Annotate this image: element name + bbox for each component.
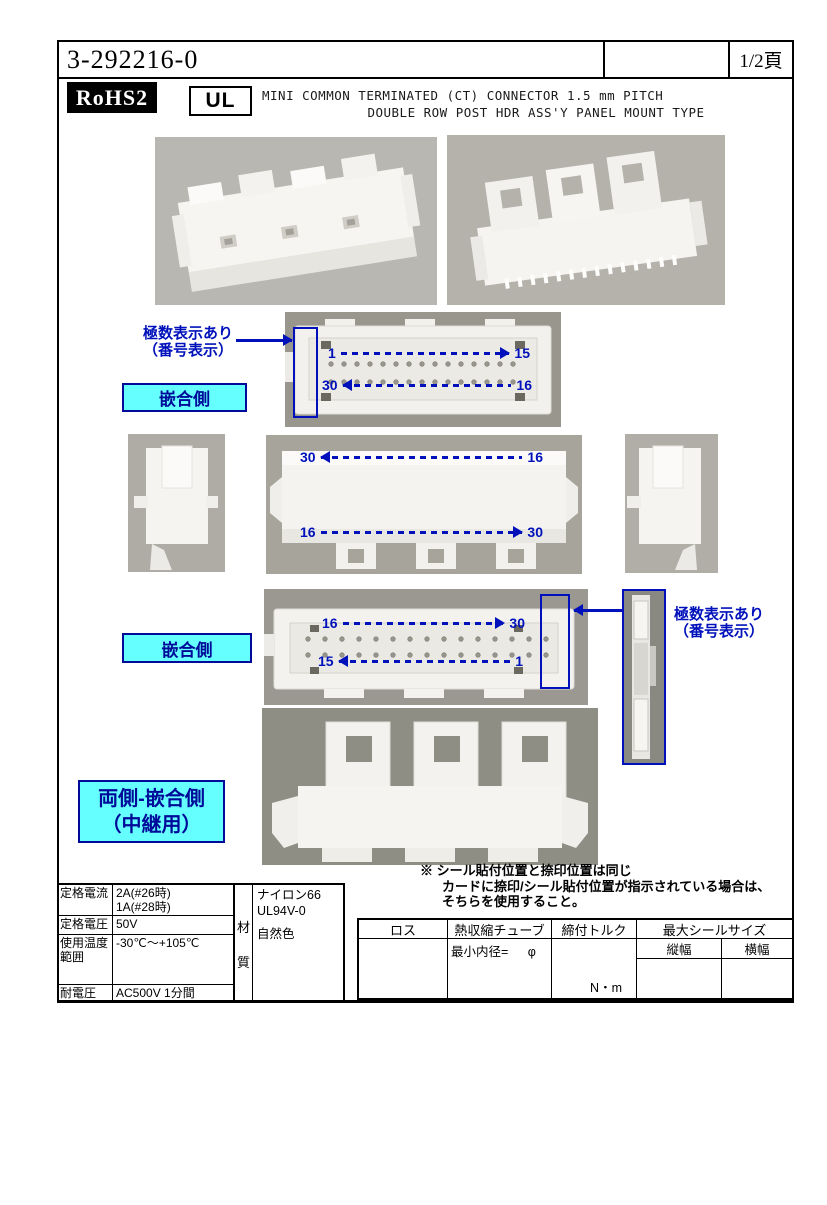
photo-iso-view-left [155,137,437,305]
material-label-char2: 質 [237,952,250,971]
heat-shrink-cell: 最小内径= φ [448,939,552,998]
rohs2-badge: RoHS2 [67,82,157,113]
seal-position-note: ※ シール貼付位置と捺印位置は同じ カードに捺印/シール貼付位置が指示されている… [420,863,805,910]
max-seal-subheader: 縦幅 横幅 [637,939,792,957]
callout-line2: （番号表示） [663,623,775,640]
rated-voltage-value: 50V [113,916,233,935]
pin-number: 16 [516,377,532,393]
col-header-loss: ロス [359,920,448,939]
dashed-arrow-left [321,456,523,459]
spec-table: 定格電流 2A(#26時) 1A(#28時) 定格電圧 50V 使用温度 範囲 … [57,883,235,1003]
connector-illustration [447,135,725,305]
pin-number: 16 [527,449,543,465]
col-header-max-seal: 最大シールサイズ [637,920,792,939]
connector-end-illustration [128,434,225,572]
photo-relay-type [262,708,598,865]
pin-number: 1 [328,345,336,361]
temp-range-label2: 範囲 [60,950,109,964]
title-block-header: 3-292216-0 1/2頁 [57,40,794,79]
rated-current-value: 2A(#26時) 1A(#28時) [113,885,233,916]
temp-range-label: 使用温度 範囲 [57,935,113,985]
connector-face-illustration [285,312,561,427]
pin-number: 30 [509,615,525,631]
material-box: 材 質 ナイロン66 UL94V-0 自然色 [235,883,345,1003]
pin-number: 30 [527,524,543,540]
callout-line1: 極数表示あり [133,325,243,342]
photo-end-view-right [625,434,718,573]
pin-number: 16 [322,615,338,631]
callout-arrow-right [574,609,622,612]
material-value3: 自然色 [257,926,339,942]
dashed-arrow-right [343,622,505,625]
callout-arrow-top [236,339,292,342]
connector-end-illustration [625,434,718,573]
both-sides-line2: （中継用） [102,812,202,838]
both-sides-line1: 両側-嵌合側 [98,786,205,812]
max-seal-body [637,957,792,998]
photo-marking-closeup [622,589,666,765]
phi-symbol: φ [528,945,536,959]
photo-end-view-left [128,434,225,572]
temp-range-value: -30℃〜+105℃ [113,935,233,985]
pin-number: 15 [514,345,530,361]
seal-horizontal-header: 横幅 [722,939,792,959]
datasheet-page: 3-292216-0 1/2頁 RoHS2 UL MINI COMMON TER… [0,0,827,1205]
ul-badge: UL [189,86,252,116]
col-header-heat-shrink: 熱収縮チューブ [448,920,552,939]
pole-marking-highlight-left [293,327,318,418]
pole-marking-callout-right: 極数表示あり （番号表示） [663,606,775,640]
pin-number: 15 [318,653,334,669]
pole-marking-highlight-right [540,594,570,689]
photo-iso-view-right [447,135,725,305]
marking-strip-illustration [624,591,664,763]
pole-marking-callout-top: 極数表示あり （番号表示） [133,325,243,359]
col-header-torque: 締付トルク [552,920,637,939]
product-title-line2: DOUBLE ROW POST HDR ASS'Y PANEL MOUNT TY… [262,104,810,121]
material-value2: UL94V-0 [257,903,339,919]
dashed-arrow-right [341,352,510,355]
pin-row-face2-bottom: 15 1 [318,653,523,669]
pin-number: 16 [300,524,316,540]
min-inner-dia-label: 最小内径= [451,945,508,959]
dashed-arrow-left [339,660,511,663]
assembly-spec-table: ロス 熱収縮チューブ 締付トルク 最大シールサイズ 最小内径= φ N・m 縦幅… [357,918,794,1000]
torque-unit: N・m [590,977,622,996]
loss-cell [359,939,448,998]
pin-row-middle-top: 30 16 [300,449,543,465]
callout-line2: （番号表示） [133,342,243,359]
seal-vertical-header: 縦幅 [637,939,722,959]
pin-number: 30 [322,377,338,393]
rated-voltage-label: 定格電圧 [57,916,113,935]
pin-row-face1-bottom: 30 16 [322,377,532,393]
product-title: MINI COMMON TERMINATED (CT) CONNECTOR 1.… [262,87,810,121]
material-values: ナイロン66 UL94V-0 自然色 [253,885,343,1003]
page-number: 1/2頁 [728,42,792,77]
withstand-voltage-label: 耐電圧 [57,985,113,1003]
product-title-line1: MINI COMMON TERMINATED (CT) CONNECTOR 1.… [262,87,810,104]
material-label-char1: 材 [237,917,250,936]
callout-line1: 極数表示あり [663,606,775,623]
temp-range-label1: 使用温度 [60,936,109,950]
pin-row-face1-top: 1 15 [328,345,530,361]
rated-current-value1: 2A(#26時) [116,886,230,900]
rated-current-label: 定格電流 [57,885,113,916]
dashed-arrow-left [343,384,512,387]
note-line2: カードに捺印/シール貼付位置が指示されている場合は、 [442,879,805,895]
connector-relay-illustration [262,708,598,865]
pin-number: 30 [300,449,316,465]
photo-mating-face-1 [285,312,561,427]
part-number: 3-292216-0 [59,42,603,77]
seal-horizontal-cell [722,957,792,998]
dashed-arrow-right [321,531,523,534]
header-empty-cell [603,42,728,77]
both-sides-mating-label: 両側-嵌合側 （中継用） [78,780,225,843]
torque-cell: N・m [552,939,637,998]
note-line3: そちらを使用すること。 [442,894,805,910]
rated-current-value2: 1A(#28時) [116,900,230,914]
mating-side-label-1: 嵌合側 [122,383,247,412]
pin-row-middle-bottom: 16 30 [300,524,543,540]
withstand-voltage-value: AC500V 1分間 [113,985,233,1003]
seal-vertical-cell [637,957,722,998]
note-line1: ※ シール貼付位置と捺印位置は同じ [420,863,805,879]
mating-side-label-2: 嵌合側 [122,633,252,663]
connector-illustration [155,137,437,305]
pin-number: 1 [515,653,523,669]
material-label: 材 質 [235,885,253,1003]
material-value1: ナイロン66 [257,887,339,903]
pin-row-face2-top: 16 30 [322,615,525,631]
